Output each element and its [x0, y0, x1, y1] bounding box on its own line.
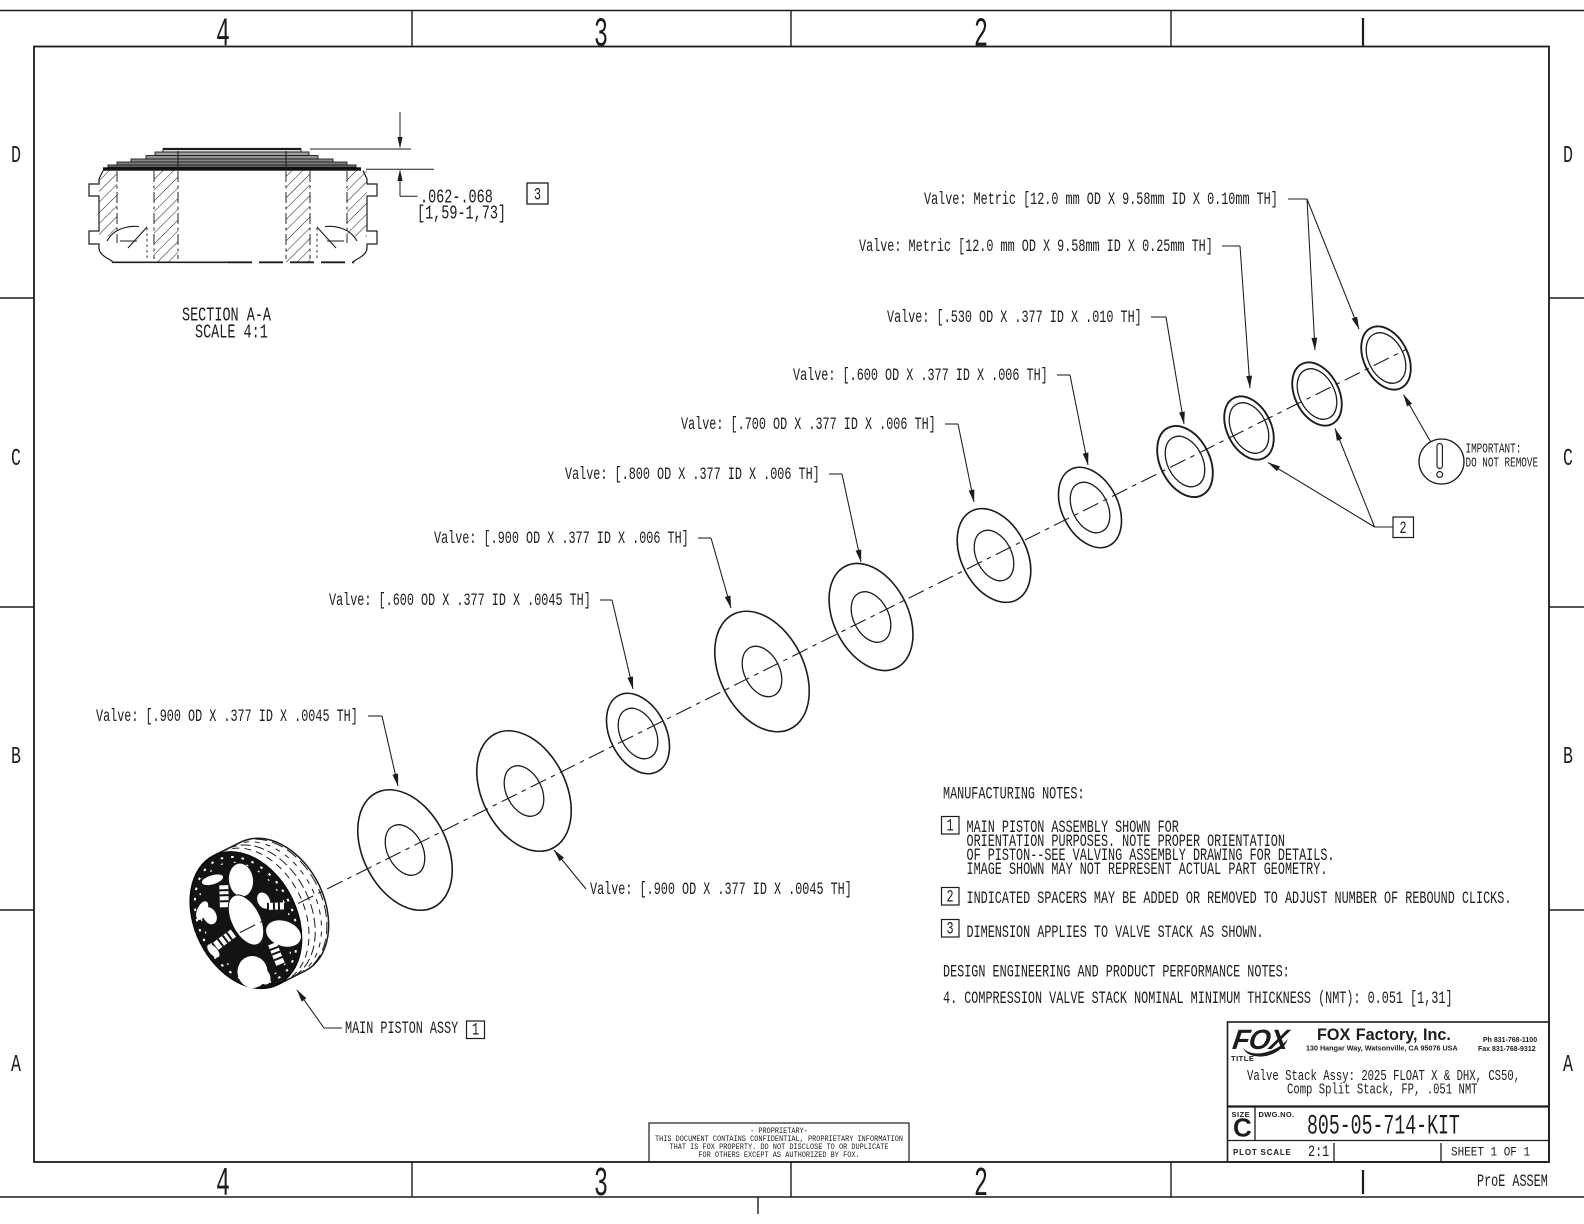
svg-text:3: 3: [946, 921, 953, 940]
svg-text:C: C: [11, 446, 21, 473]
svg-text:Valve: [.600 OD X .377 ID X .0: Valve: [.600 OD X .377 ID X .006 TH]: [793, 367, 1048, 386]
svg-text:ProE ASSEM: ProE ASSEM: [1477, 1173, 1548, 1192]
svg-text:FOX: FOX: [1231, 1024, 1293, 1055]
svg-text:D: D: [11, 143, 21, 170]
svg-text:2: 2: [1399, 520, 1406, 539]
svg-text:D: D: [1563, 143, 1573, 170]
svg-text:Ph 831-768-1100: Ph 831-768-1100: [1483, 1037, 1537, 1044]
svg-text:2: 2: [974, 11, 988, 58]
svg-text:FOR OTHERS EXCEPT AS AUTHORIZE: FOR OTHERS EXCEPT AS AUTHORIZED BY FOX.: [698, 1150, 859, 1160]
svg-text:Valve: [.800 OD X .377 ID X .0: Valve: [.800 OD X .377 ID X .006 TH]: [565, 466, 820, 485]
svg-text:4: 4: [216, 1161, 230, 1208]
svg-text:A: A: [1563, 1052, 1573, 1079]
svg-text:Valve: [.900 OD X .377 ID X .0: Valve: [.900 OD X .377 ID X .006 TH]: [434, 530, 689, 549]
svg-text:Valve: [.600 OD X .377 ID X .0: Valve: [.600 OD X .377 ID X .0045 TH]: [329, 592, 591, 611]
svg-text:3: 3: [594, 11, 608, 58]
svg-text:C: C: [1233, 1113, 1252, 1143]
svg-text:1: 1: [946, 818, 953, 837]
svg-text:Valve: [.900 OD X .377 ID X .0: Valve: [.900 OD X .377 ID X .0045 TH]: [590, 881, 852, 900]
svg-text:1: 1: [472, 1022, 479, 1041]
svg-text:DIMENSION APPLIES TO VALVE STA: DIMENSION APPLIES TO VALVE STACK AS SHOW…: [967, 924, 1264, 943]
svg-text:Valve: Metric [12.0 mm OD X 9.: Valve: Metric [12.0 mm OD X 9.58mm ID X …: [924, 191, 1278, 210]
svg-text:Fax 831-768-9312: Fax 831-768-9312: [1478, 1046, 1536, 1053]
svg-text:DO NOT REMOVE: DO NOT REMOVE: [1466, 456, 1539, 471]
svg-text:SHEET 1 OF 1: SHEET 1 OF 1: [1451, 1145, 1530, 1160]
svg-text:Valve: [.900 OD X .377 ID X .0: Valve: [.900 OD X .377 ID X .0045 TH]: [96, 708, 358, 727]
svg-text:Valve: [.530 OD X .377 ID X .0: Valve: [.530 OD X .377 ID X .010 TH]: [887, 309, 1142, 328]
svg-text:4. COMPRESSION VALVE STACK NOM: 4. COMPRESSION VALVE STACK NOMINAL MINIM…: [943, 990, 1453, 1009]
svg-text:805-05-714-KIT: 805-05-714-KIT: [1307, 1112, 1460, 1143]
svg-text:3: 3: [534, 187, 541, 206]
svg-text:SCALE 4:1: SCALE 4:1: [195, 322, 268, 344]
svg-text:Comp Split Stack, FP, .051 NMT: Comp Split Stack, FP, .051 NMT: [1287, 1081, 1478, 1098]
svg-text:Valve: Metric [12.0 mm OD X 9.: Valve: Metric [12.0 mm OD X 9.58mm ID X …: [859, 238, 1213, 257]
svg-text:PLOT SCALE: PLOT SCALE: [1233, 1148, 1292, 1157]
svg-text:MAIN PISTON ASSY: MAIN PISTON ASSY: [345, 1020, 458, 1039]
svg-text:C: C: [1563, 446, 1573, 473]
svg-text:DESIGN ENGINEERING AND PRODUCT: DESIGN ENGINEERING AND PRODUCT PERFORMAN…: [943, 964, 1290, 983]
svg-text:B: B: [1563, 744, 1573, 771]
svg-text:DWG.NO.: DWG.NO.: [1259, 1110, 1295, 1119]
svg-text:3: 3: [594, 1161, 608, 1208]
svg-text:IMAGE SHOWN MAY NOT REPRESENT: IMAGE SHOWN MAY NOT REPRESENT ACTUAL PAR…: [967, 861, 1328, 880]
svg-text:Valve: [.700 OD X .377 ID X .0: Valve: [.700 OD X .377 ID X .006 TH]: [681, 416, 936, 435]
svg-text:IMPORTANT:: IMPORTANT:: [1466, 442, 1522, 457]
svg-text:2: 2: [974, 1161, 988, 1208]
svg-text:TITLE: TITLE: [1231, 1054, 1254, 1063]
svg-text:[1,59-1,73]: [1,59-1,73]: [417, 203, 506, 225]
svg-text:4: 4: [216, 11, 230, 58]
svg-text:A: A: [11, 1052, 21, 1079]
svg-text:B: B: [11, 744, 21, 771]
svg-text:2:1: 2:1: [1308, 1145, 1329, 1162]
svg-text:INDICATED SPACERS MAY BE ADDED: INDICATED SPACERS MAY BE ADDED OR REMOVE…: [967, 890, 1512, 909]
svg-text:130 Hangar Way, Watsonville, C: 130 Hangar Way, Watsonville, CA 95076 US…: [1306, 1044, 1458, 1053]
svg-text:MANUFACTURING NOTES:: MANUFACTURING NOTES:: [943, 786, 1085, 805]
svg-text:2: 2: [946, 889, 953, 908]
svg-text:FOX Factory, Inc.: FOX Factory, Inc.: [1317, 1026, 1451, 1044]
